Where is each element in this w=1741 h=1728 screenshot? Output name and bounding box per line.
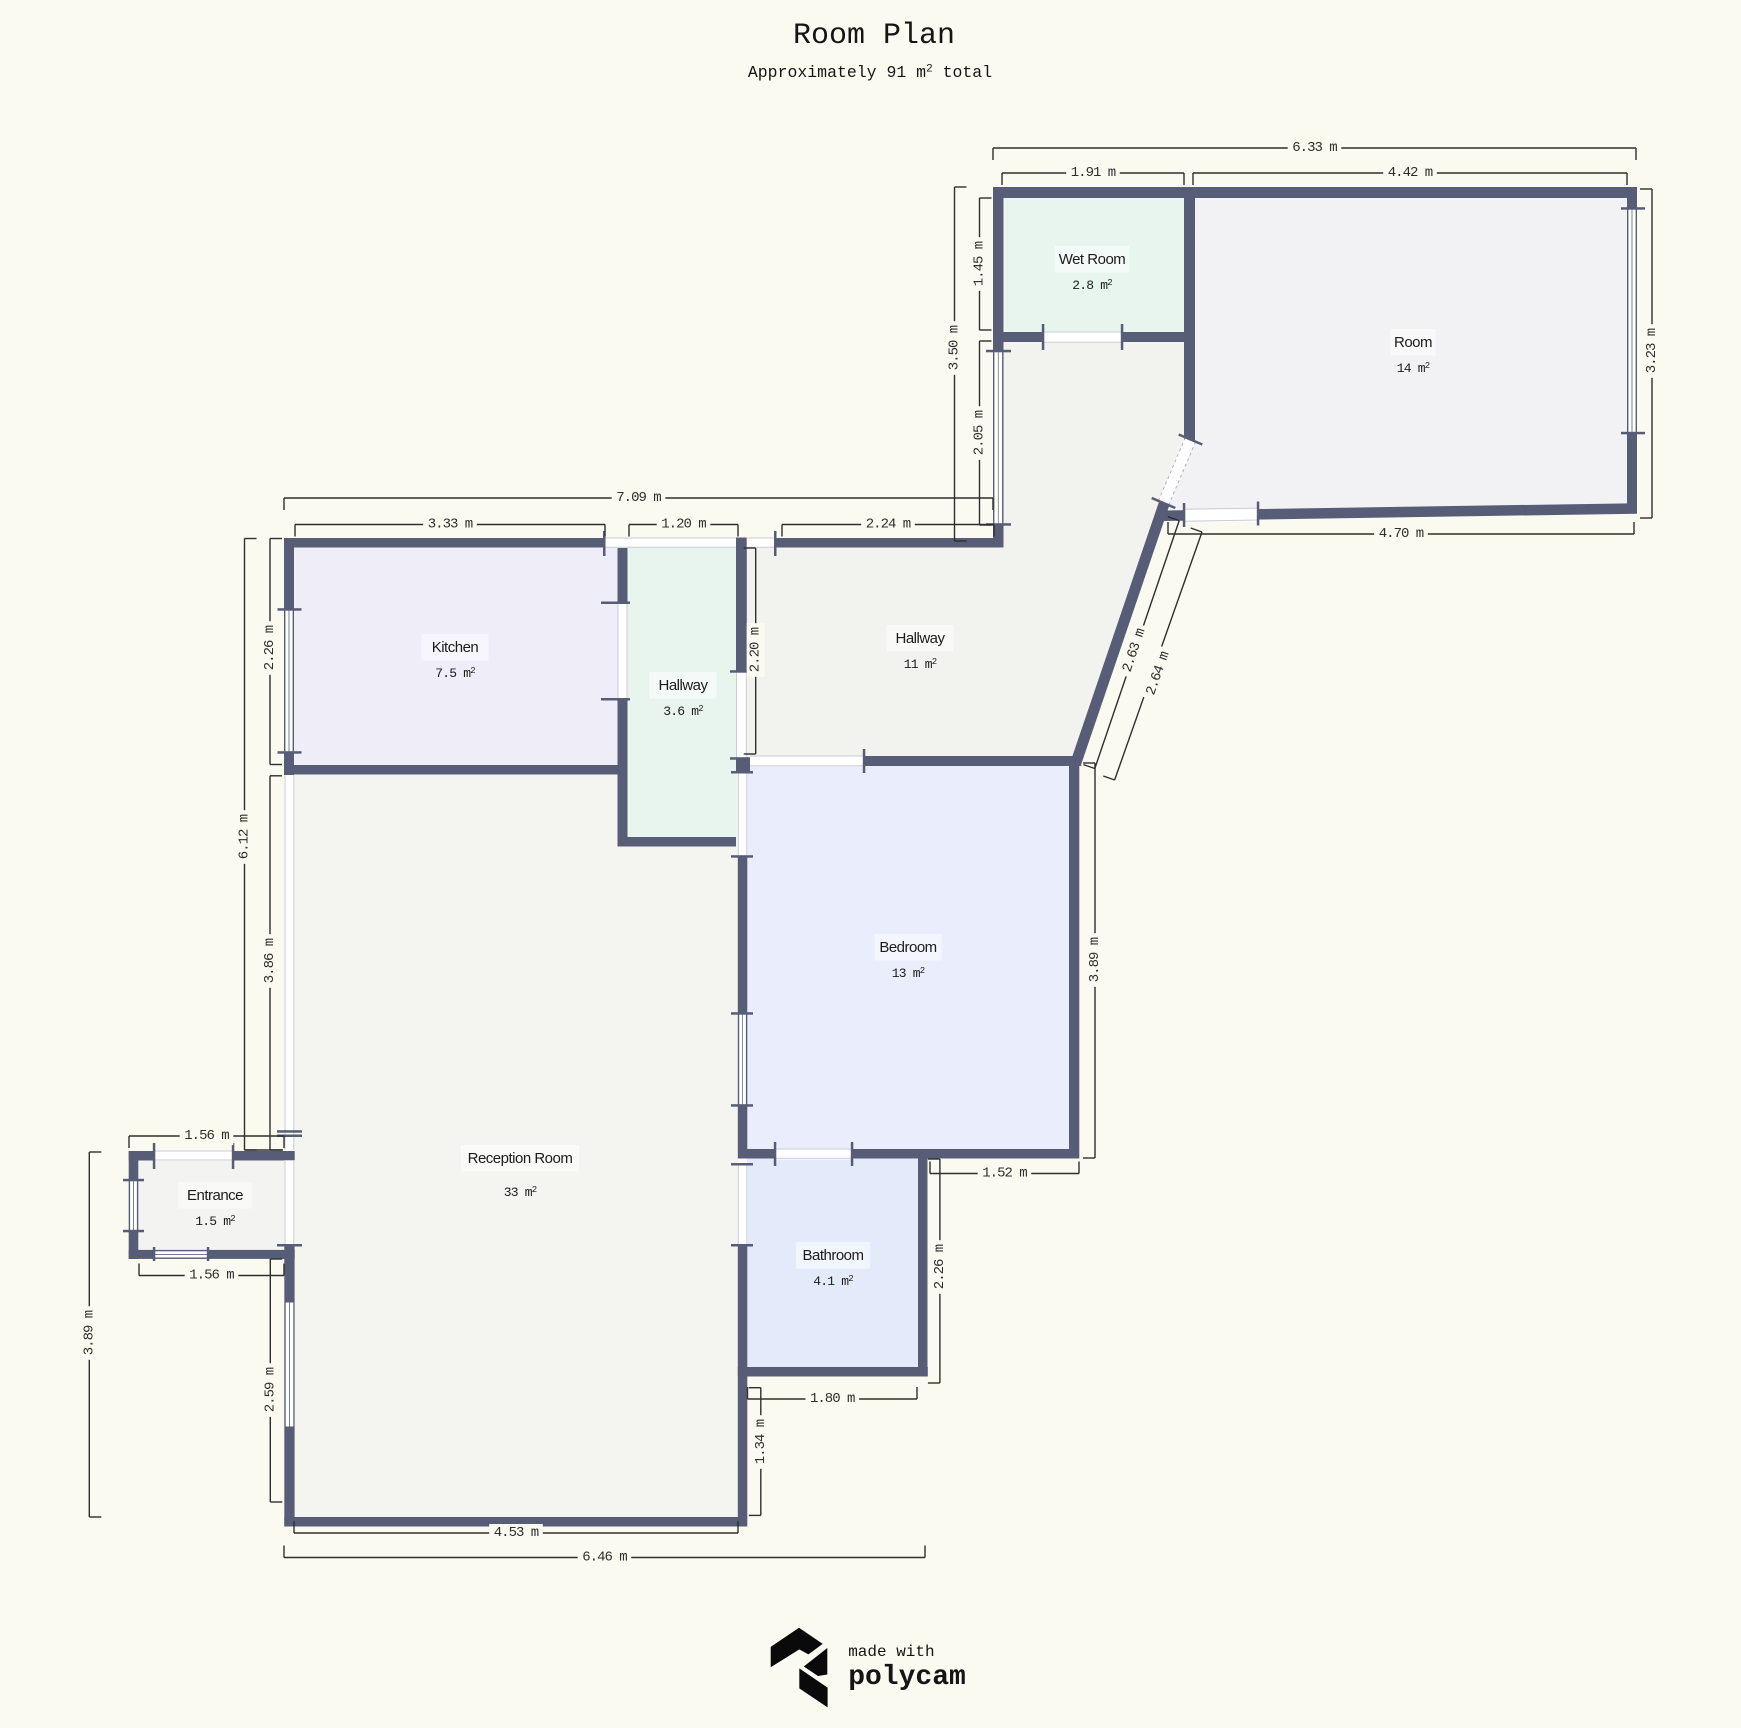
svg-text:3.86 m: 3.86 m [262,938,278,983]
svg-text:Kitchen: Kitchen [432,639,479,656]
svg-text:1.91 m: 1.91 m [1071,165,1116,181]
svg-text:2.24 m: 2.24 m [866,517,911,533]
svg-text:3.89 m: 3.89 m [1087,937,1103,982]
svg-text:2.8 m2: 2.8 m2 [1072,278,1112,293]
svg-text:1.52 m: 1.52 m [982,1166,1027,1182]
svg-text:3.50 m: 3.50 m [947,325,963,370]
svg-text:2.59 m: 2.59 m [262,1367,278,1412]
svg-text:4.53 m: 4.53 m [494,1525,539,1541]
svg-text:Approximately 91 m2 total: Approximately 91 m2 total [748,63,992,82]
svg-text:6.33 m: 6.33 m [1292,140,1337,156]
svg-text:3.89 m: 3.89 m [81,1310,97,1355]
svg-text:2.05 m: 2.05 m [972,410,988,455]
svg-text:Room: Room [1394,334,1432,351]
svg-text:1.80 m: 1.80 m [810,1391,855,1407]
svg-text:3.33 m: 3.33 m [428,517,473,533]
svg-text:6.46 m: 6.46 m [582,1550,627,1566]
svg-text:7.5 m2: 7.5 m2 [435,666,475,681]
svg-text:Reception Room: Reception Room [468,1150,573,1167]
svg-text:Hallway: Hallway [895,630,945,647]
svg-text:1.56 m: 1.56 m [184,1128,229,1144]
svg-text:Hallway: Hallway [658,677,708,694]
svg-text:made with: made with [848,1643,934,1661]
svg-text:3.6 m2: 3.6 m2 [663,704,703,719]
svg-text:Bedroom: Bedroom [879,939,936,956]
svg-text:4.70 m: 4.70 m [1379,526,1424,542]
svg-text:7.09 m: 7.09 m [616,490,661,506]
svg-text:1.5 m2: 1.5 m2 [195,1214,235,1229]
svg-text:3.23 m: 3.23 m [1644,328,1660,373]
svg-text:2.26 m: 2.26 m [932,1244,948,1289]
svg-text:Room Plan: Room Plan [793,19,955,53]
svg-text:1.45 m: 1.45 m [972,241,988,286]
svg-text:Wet Room: Wet Room [1059,251,1126,268]
svg-text:2.20 m: 2.20 m [748,627,764,672]
svg-text:6.12 m: 6.12 m [237,814,253,859]
svg-text:4.1 m2: 4.1 m2 [813,1274,853,1289]
svg-text:1.56 m: 1.56 m [189,1268,234,1284]
svg-text:Entrance: Entrance [187,1187,243,1204]
svg-text:1.20 m: 1.20 m [661,517,706,533]
svg-text:1.34 m: 1.34 m [753,1419,769,1464]
svg-text:Bathroom: Bathroom [802,1247,863,1264]
svg-text:2.26 m: 2.26 m [262,625,278,670]
svg-text:polycam: polycam [848,1662,966,1693]
svg-text:4.42 m: 4.42 m [1388,165,1433,181]
